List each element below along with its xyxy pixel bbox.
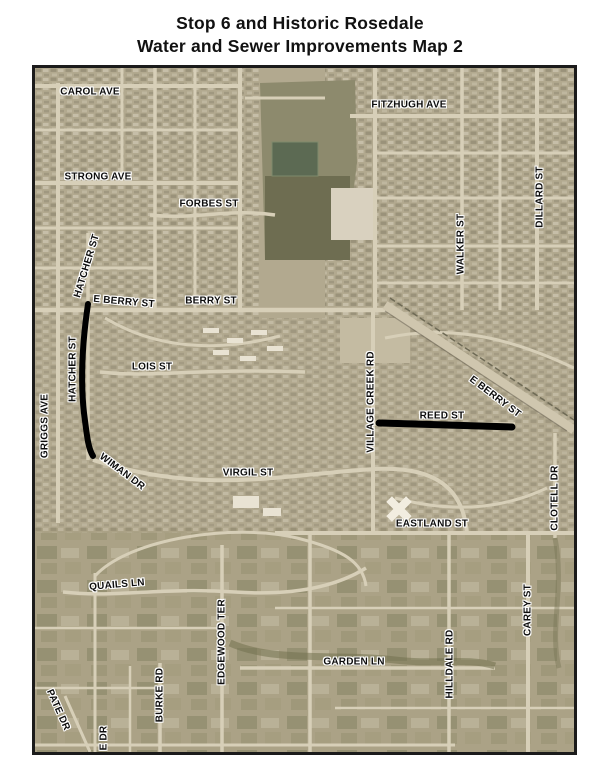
street-label-walker-st: WALKER ST [456,214,467,275]
street-label-hatcher-st: HATCHER ST [68,336,79,402]
street-label-e-berry-st: E BERRY ST [467,374,523,420]
street-label-strong-ave: STRONG AVE [64,172,131,183]
page: { "title": { "line1": "Stop 6 and Histor… [0,0,600,777]
street-label-village-creek-rd: VILLAGE CREEK RD [366,351,377,453]
street-label-virgil-st: VIRGIL ST [223,468,274,479]
street-label-hatcher-st: HATCHER ST [72,233,102,299]
street-labels-layer: CAROL AVEFITZHUGH AVESTRONG AVEFORBES ST… [35,68,574,752]
street-label-clotell-dr: CLOTELL DR [550,465,561,530]
street-label-carey-st: CAREY ST [523,584,534,636]
street-label-carol-ave: CAROL AVE [60,87,119,98]
map-frame: CAROL AVEFITZHUGH AVESTRONG AVEFORBES ST… [32,65,577,755]
street-label-garden-ln: GARDEN LN [323,657,384,668]
street-label-edgewood-ter: EDGEWOOD TER [217,599,228,685]
street-label-berry-st: BERRY ST [185,296,237,307]
street-label-e-dr: E DR [99,726,110,751]
street-label-pate-dr: PATE DR [44,688,72,732]
street-label-dillard-st: DILLARD ST [535,166,546,227]
street-label-hilldale-rd: HILLDALE RD [445,630,456,699]
map-title: Stop 6 and Historic Rosedale Water and S… [0,12,600,58]
street-label-lois-st: LOIS ST [132,362,172,373]
street-label-reed-st: REED ST [420,411,465,422]
street-label-wiman-dr: WIMAN DR [97,451,147,492]
street-label-burke-rd: BURKE RD [155,668,166,722]
map-title-line1: Stop 6 and Historic Rosedale [0,12,600,35]
map-title-line2: Water and Sewer Improvements Map 2 [0,35,600,58]
street-label-forbes-st: FORBES ST [179,199,238,210]
street-label-eastland-st: EASTLAND ST [396,519,468,530]
street-label-griggs-ave: GRIGGS AVE [40,394,51,458]
street-label-e-berry-st: E BERRY ST [93,294,155,310]
street-label-fitzhugh-ave: FITZHUGH AVE [371,100,446,111]
street-label-quails-ln: QUAILS LN [89,577,145,593]
